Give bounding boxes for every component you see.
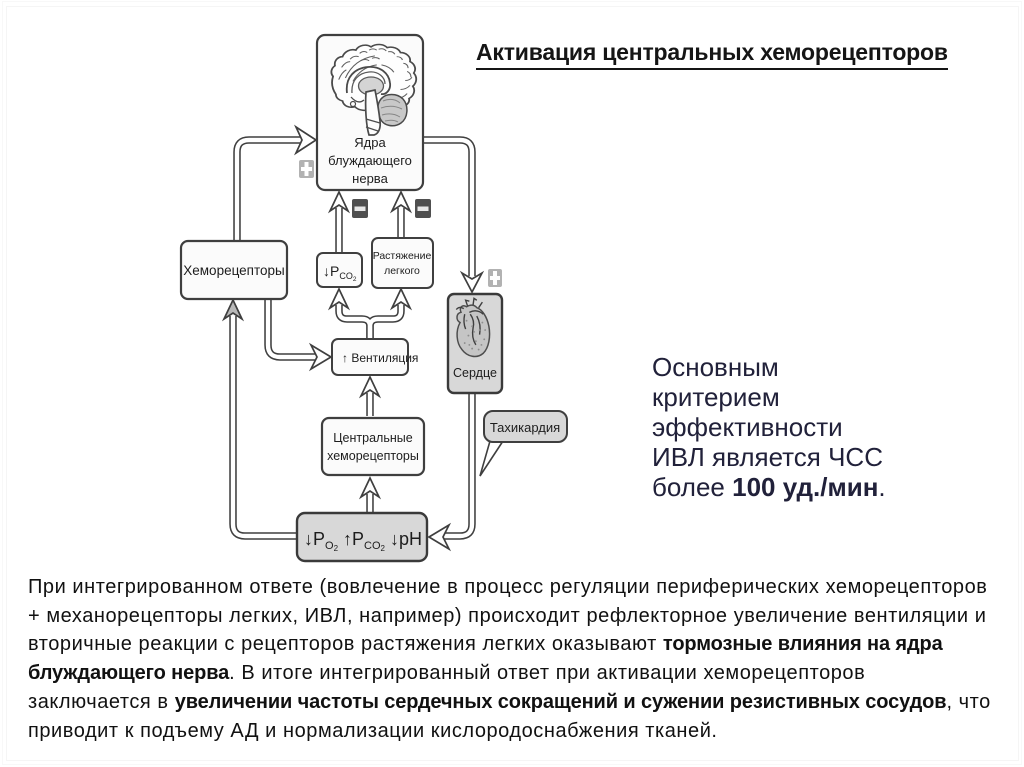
svg-text:↑ Вентиляция: ↑ Вентиляция (342, 351, 418, 365)
svg-text:Сердце: Сердце (453, 366, 497, 380)
svg-text:Тахикардия: Тахикардия (490, 420, 560, 435)
svg-text:Растяжение: Растяжение (373, 250, 432, 262)
svg-text:нерва: нерва (352, 171, 388, 186)
svg-text:Центральные: Центральные (333, 431, 412, 445)
svg-text:легкого: легкого (384, 265, 420, 277)
svg-text:Ядра: Ядра (354, 135, 386, 150)
svg-text:хеморецепторы: хеморецепторы (327, 449, 419, 463)
svg-text:блуждающего: блуждающего (328, 153, 412, 168)
svg-text:Хеморецепторы: Хеморецепторы (183, 263, 284, 278)
